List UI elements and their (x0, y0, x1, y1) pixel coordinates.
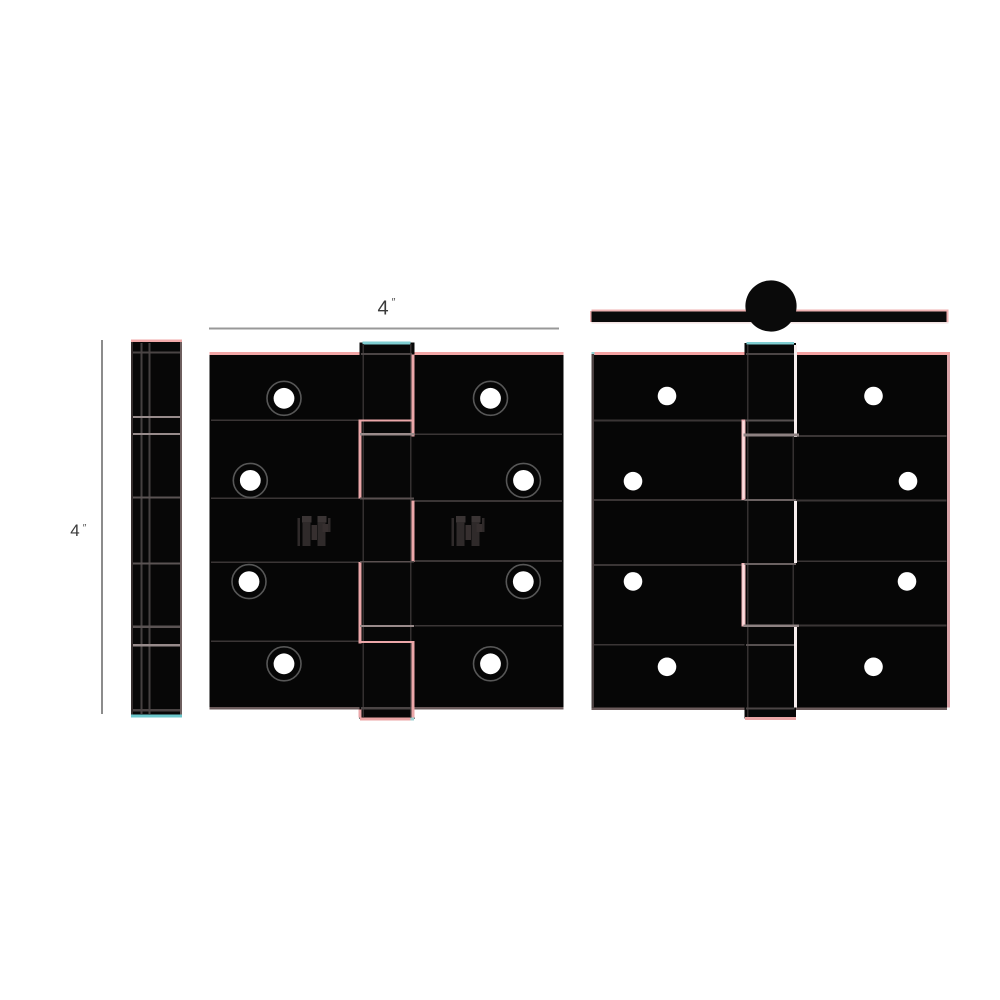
svg-text:″: ″ (83, 522, 87, 534)
svg-text:4: 4 (70, 521, 79, 540)
svg-text:4: 4 (377, 298, 388, 320)
svg-text:″: ″ (392, 297, 396, 309)
